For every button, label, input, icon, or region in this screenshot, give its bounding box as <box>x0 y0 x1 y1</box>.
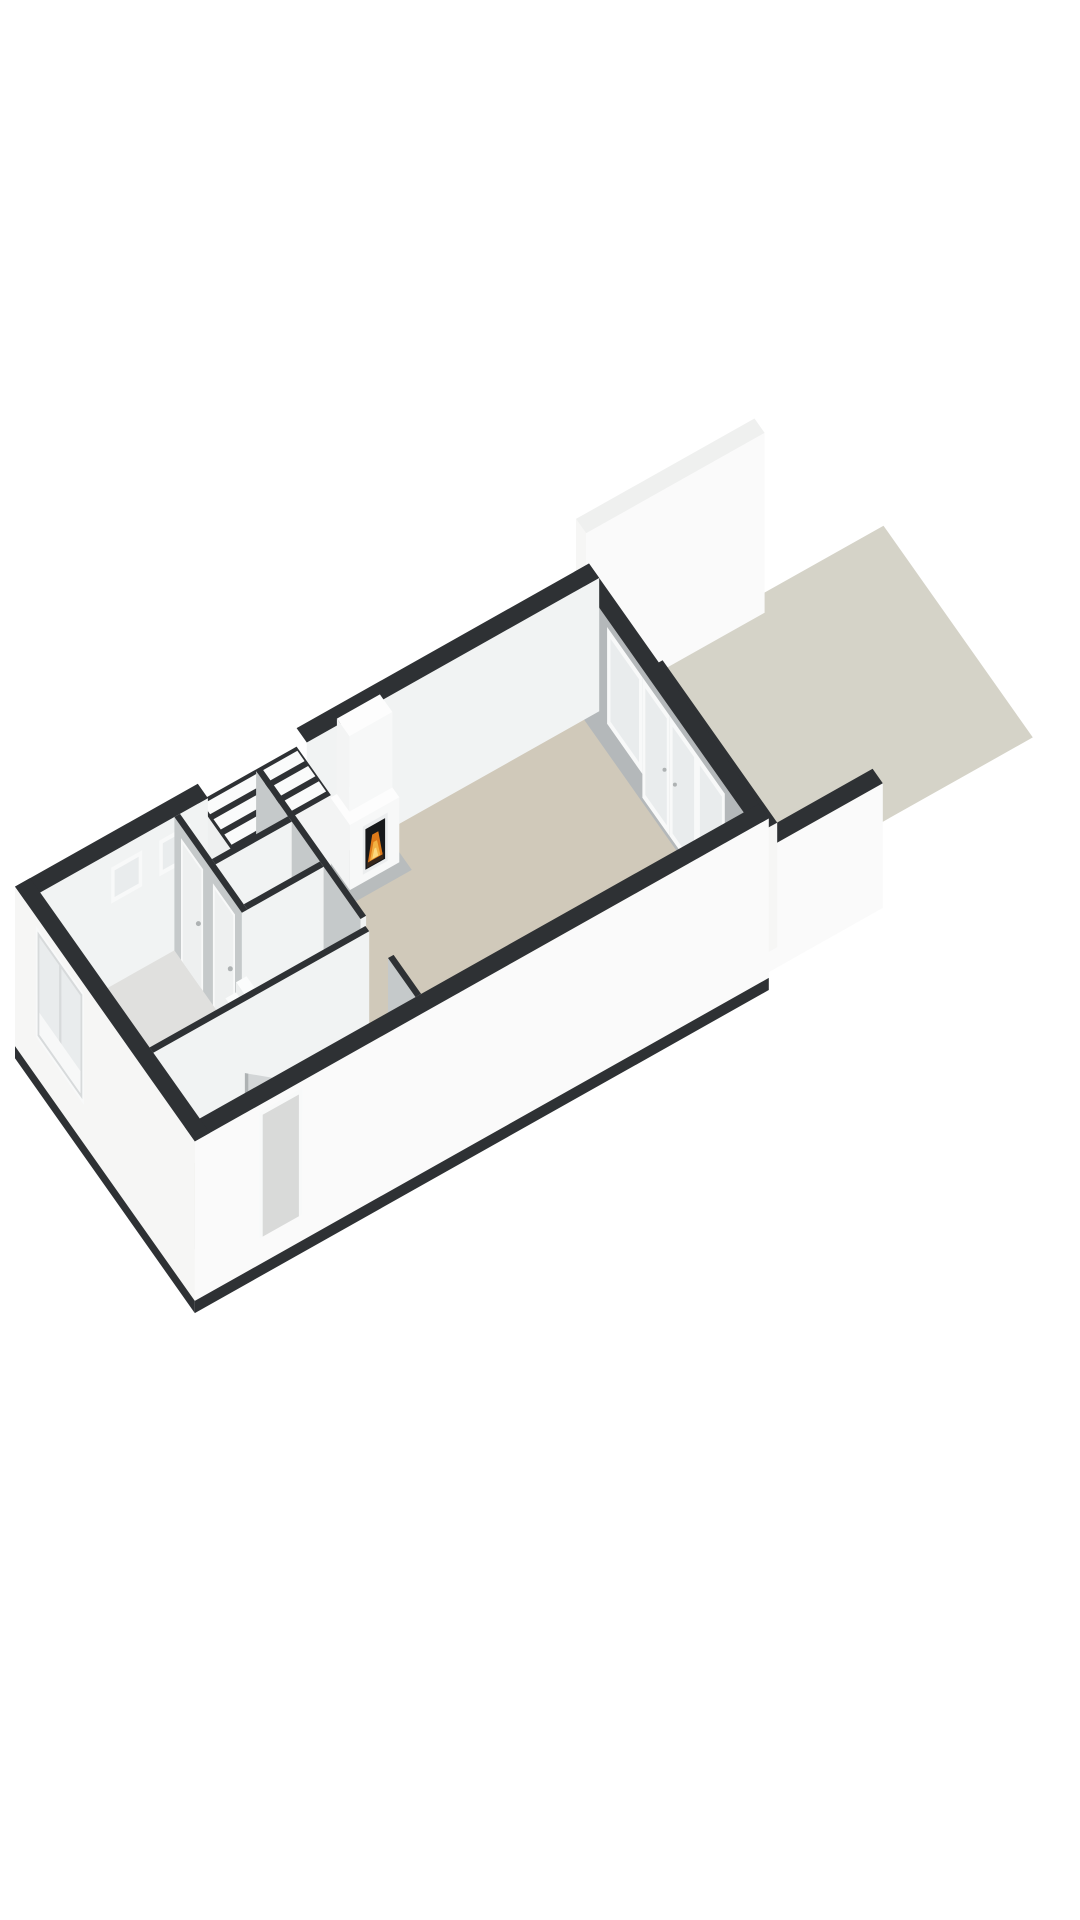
page-background <box>0 0 1080 1920</box>
back-door-right-handle <box>673 783 677 787</box>
floorplan-3d-view[interactable] <box>0 0 1080 1920</box>
storeroom-door-handle <box>196 921 201 926</box>
entry-door-opening <box>263 1095 299 1237</box>
floorplan-canvas <box>0 0 1080 1920</box>
toilet-door-handle <box>228 966 233 971</box>
back-door-left-handle <box>663 768 667 772</box>
